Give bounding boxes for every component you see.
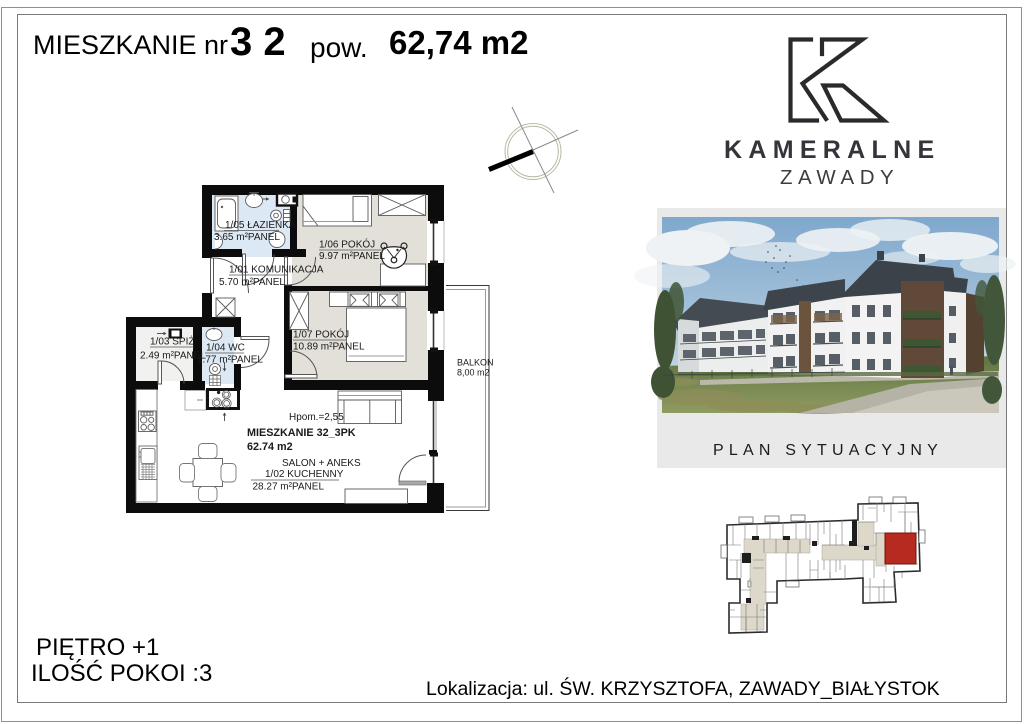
svg-text:SALON + ANEKS: SALON + ANEKS: [282, 458, 361, 469]
svg-text:3.65 m²PANEL: 3.65 m²PANEL: [214, 232, 280, 243]
svg-text:1/04 WC: 1/04 WC: [206, 343, 245, 354]
svg-text:28.27 m²PANEL: 28.27 m²PANEL: [253, 482, 325, 493]
svg-text:1.77 m²PANEL: 1.77 m²PANEL: [197, 355, 263, 366]
svg-text:5.70 m²PANEL: 5.70 m²PANEL: [219, 277, 285, 288]
svg-text:1/06 POKÓJ: 1/06 POKÓJ: [319, 238, 375, 251]
svg-text:62.74 m2: 62.74 m2: [247, 441, 293, 453]
svg-text:10.89 m²PANEL: 10.89 m²PANEL: [293, 342, 365, 353]
svg-text:1/05 ŁAZIENKA: 1/05 ŁAZIENKA: [225, 220, 296, 231]
svg-text:9.97 m²PANEL: 9.97 m²PANEL: [319, 251, 385, 262]
svg-text:MIESZKANIE 32_3PK: MIESZKANIE 32_3PK: [247, 427, 356, 439]
svg-text:Hpom.=2,55: Hpom.=2,55: [289, 412, 344, 423]
svg-text:1/03 SPIŻ: 1/03 SPIŻ: [150, 335, 194, 348]
svg-text:1/02 KUCHENNY: 1/02 KUCHENNY: [265, 469, 344, 480]
svg-text:BALKON: BALKON: [457, 358, 494, 368]
svg-text:1/01 KOMUNIKACJA: 1/01 KOMUNIKACJA: [229, 265, 324, 276]
svg-text:1/07 POKÓJ: 1/07 POKÓJ: [293, 328, 349, 341]
svg-text:8,00 m2: 8,00 m2: [457, 368, 490, 378]
